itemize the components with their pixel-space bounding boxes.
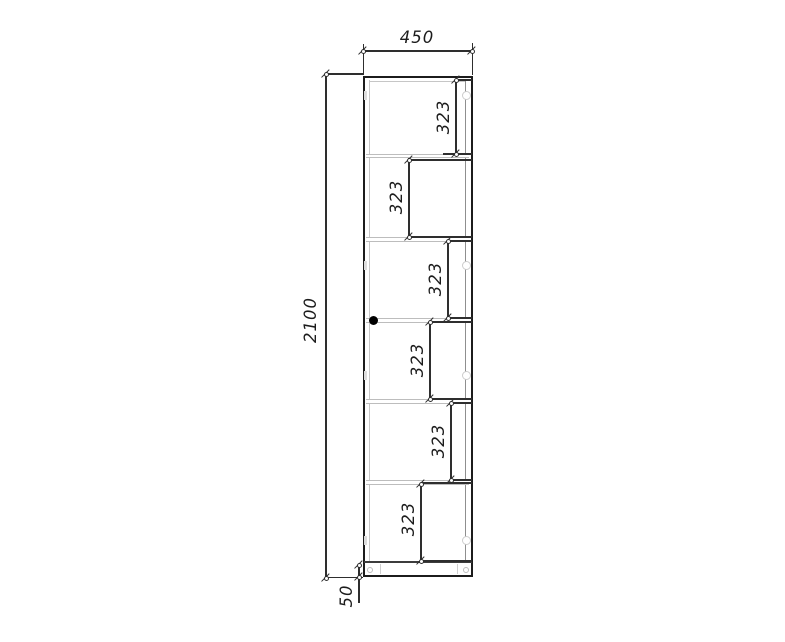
- hinge-plate-mark: [364, 536, 367, 545]
- dim-tick: [322, 70, 331, 79]
- extension-line: [409, 159, 472, 160]
- extension-line: [409, 236, 472, 237]
- plinth-joint-mark: [457, 564, 458, 574]
- extension-line: [430, 321, 472, 322]
- plinth-foot-icon: [367, 567, 373, 573]
- hinge-hole-icon: [462, 91, 471, 100]
- dimension-line-height: [325, 74, 326, 578]
- dimension-line-section: [420, 484, 421, 561]
- dim-text-section: 323: [399, 489, 419, 549]
- plinth-joint-mark: [380, 564, 381, 574]
- hinge-hole-icon: [462, 536, 471, 545]
- dim-tick: [322, 574, 331, 583]
- dim-tick: [452, 150, 461, 159]
- dim-text-section: 323: [434, 87, 454, 147]
- hinge-hole-icon: [462, 371, 471, 380]
- dimension-line-section: [447, 241, 448, 318]
- extension-line: [421, 482, 472, 483]
- dimension-line-width: [363, 50, 472, 51]
- dim-tick: [444, 237, 453, 246]
- dim-text-section: 323: [408, 330, 428, 390]
- hinge-plate-mark: [364, 371, 367, 380]
- hinge-plate-mark: [364, 91, 367, 100]
- dimension-line-section: [455, 80, 456, 154]
- dim-tick: [405, 233, 414, 242]
- door-knob-icon: [369, 316, 378, 325]
- dim-text-plinth: 50: [337, 566, 357, 626]
- dim-tick: [405, 156, 414, 165]
- dim-tick: [468, 47, 477, 56]
- extension-line: [421, 560, 472, 561]
- dim-tick: [447, 399, 456, 408]
- dim-text-width: 450: [387, 28, 447, 48]
- dim-tick: [426, 395, 435, 404]
- hinge-hole-icon: [462, 261, 471, 270]
- dim-tick: [417, 557, 426, 566]
- dim-tick: [426, 318, 435, 327]
- dimension-line-plinth: [358, 565, 359, 603]
- dim-text-section: 323: [429, 411, 449, 471]
- hinge-plate-mark: [364, 261, 367, 270]
- dimension-line-section: [450, 403, 451, 480]
- plinth-foot-icon: [463, 567, 469, 573]
- dim-text-section: 323: [426, 249, 446, 309]
- dim-text-section: 323: [387, 167, 407, 227]
- dim-tick: [452, 76, 461, 85]
- dim-tick: [359, 47, 368, 56]
- dimension-line-section: [429, 322, 430, 399]
- technical-drawing-canvas: 450 2100 50 323 323 323 323 323 323: [0, 0, 785, 642]
- dim-tick: [417, 480, 426, 489]
- dimension-line-section: [408, 158, 409, 237]
- dim-text-height: 2100: [301, 290, 321, 350]
- extension-line: [326, 73, 363, 74]
